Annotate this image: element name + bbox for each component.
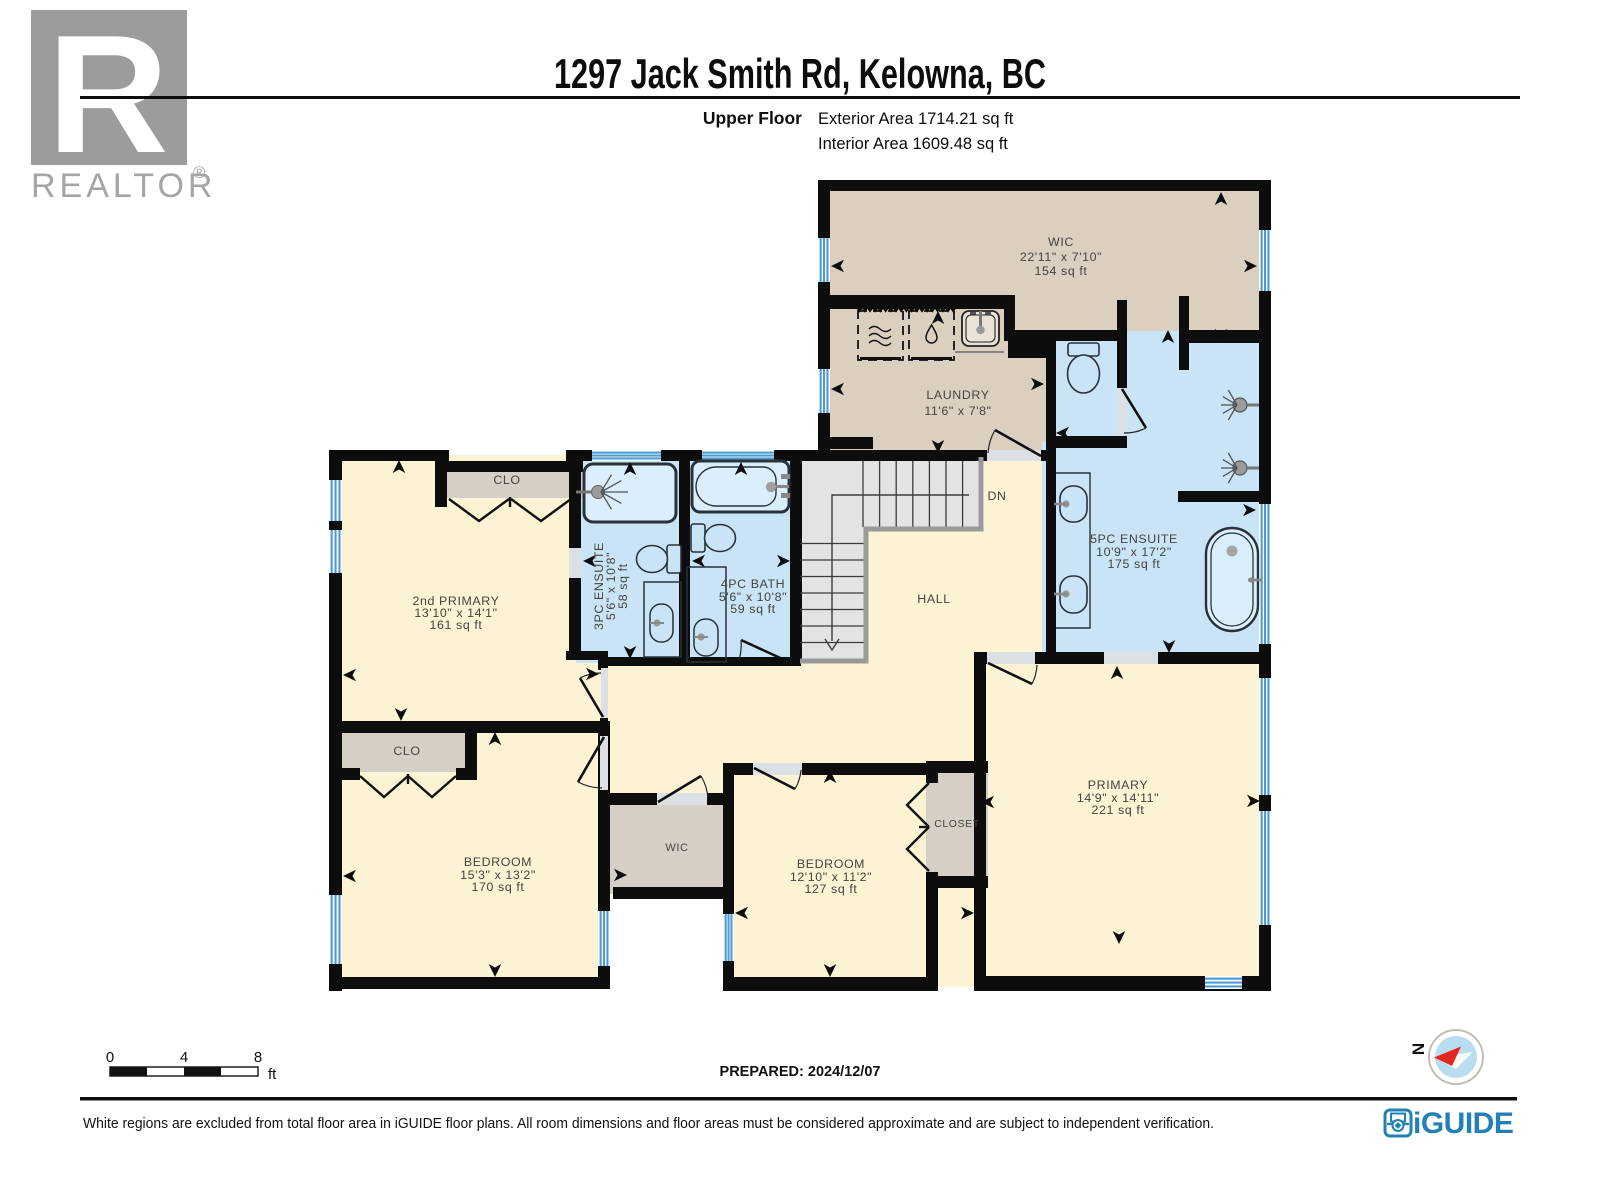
svg-text:BEDROOM: BEDROOM xyxy=(797,857,865,871)
svg-text:Interior Area 1609.48 sq ft: Interior Area 1609.48 sq ft xyxy=(818,135,1008,153)
svg-text:221 sq ft: 221 sq ft xyxy=(1092,803,1145,817)
svg-text:161 sq ft: 161 sq ft xyxy=(430,618,483,632)
svg-text:Upper Floor: Upper Floor xyxy=(703,108,802,128)
svg-text:8: 8 xyxy=(254,1049,262,1066)
svg-text:LAUNDRY: LAUNDRY xyxy=(926,388,989,402)
svg-text:R: R xyxy=(47,0,168,188)
svg-text:175 sq ft: 175 sq ft xyxy=(1108,557,1161,571)
svg-text:0: 0 xyxy=(106,1049,114,1066)
svg-text:11'6" x 7'8": 11'6" x 7'8" xyxy=(924,404,991,418)
svg-text:CLO: CLO xyxy=(493,473,520,487)
svg-text:N: N xyxy=(1409,1043,1428,1055)
svg-text:BEDROOM: BEDROOM xyxy=(464,855,532,869)
svg-text:WIC: WIC xyxy=(1048,235,1074,249)
svg-text:White regions are excluded fro: White regions are excluded from total fl… xyxy=(83,1115,1214,1132)
svg-text:5PC ENSUITE: 5PC ENSUITE xyxy=(1090,532,1178,546)
svg-text:PRIMARY: PRIMARY xyxy=(1088,778,1148,792)
svg-text:REALTOR: REALTOR xyxy=(31,167,216,205)
svg-text:4PC BATH: 4PC BATH xyxy=(721,577,785,591)
svg-text:154 sq ft: 154 sq ft xyxy=(1035,264,1088,278)
svg-text:®: ® xyxy=(193,163,206,182)
svg-text:CLOSET: CLOSET xyxy=(934,818,980,830)
svg-text:PREPARED: 2024/12/07: PREPARED: 2024/12/07 xyxy=(720,1064,881,1080)
svg-text:Exterior Area 1714.21 sq ft: Exterior Area 1714.21 sq ft xyxy=(818,110,1014,128)
svg-text:WIC: WIC xyxy=(665,842,688,854)
svg-text:4: 4 xyxy=(180,1049,188,1066)
svg-text:iGUIDE: iGUIDE xyxy=(1413,1107,1513,1140)
svg-text:170 sq ft: 170 sq ft xyxy=(472,880,525,894)
svg-text:22'11" x 7'10": 22'11" x 7'10" xyxy=(1020,250,1102,264)
svg-text:DN: DN xyxy=(987,489,1006,503)
svg-text:1297 Jack Smith Rd, Kelowna, B: 1297 Jack Smith Rd, Kelowna, BC xyxy=(554,50,1046,97)
svg-text:HALL: HALL xyxy=(917,592,950,606)
svg-text:ft: ft xyxy=(268,1066,277,1083)
svg-text:127 sq ft: 127 sq ft xyxy=(805,882,858,896)
svg-text:58 sq ft: 58 sq ft xyxy=(616,563,630,608)
svg-text:CLO: CLO xyxy=(393,744,420,758)
svg-text:59 sq ft: 59 sq ft xyxy=(730,602,775,616)
